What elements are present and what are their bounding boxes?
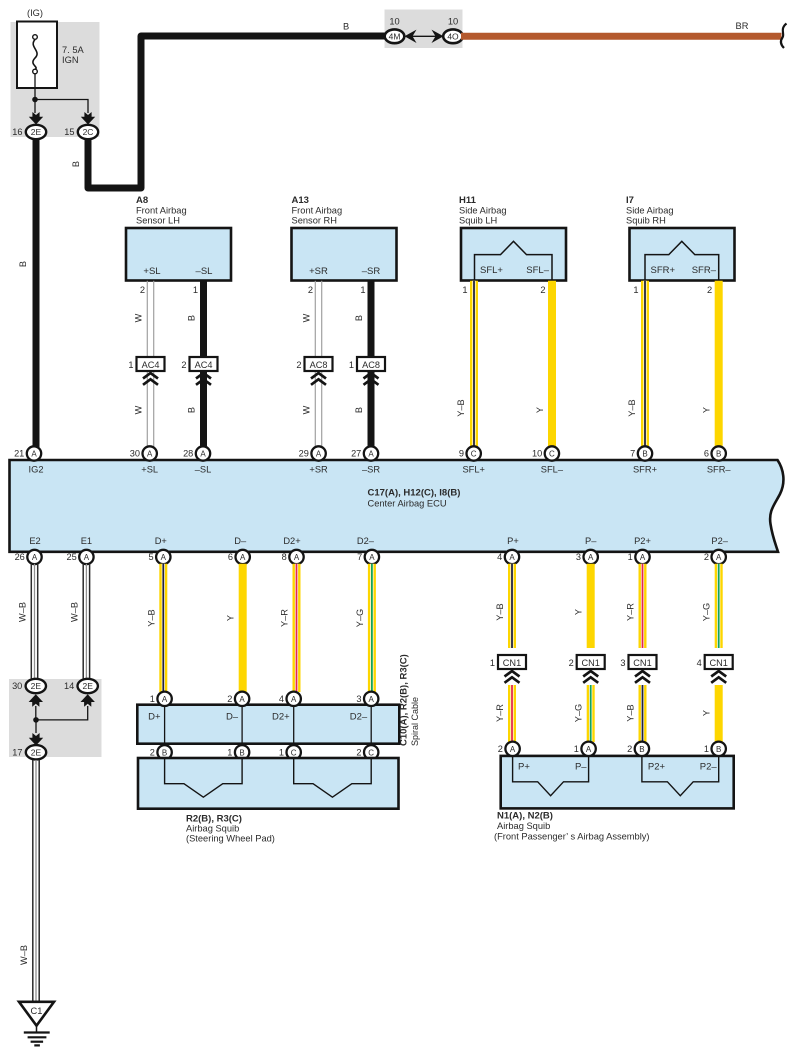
svg-text:Y: Y xyxy=(702,407,712,413)
svg-text:Y–B: Y–B xyxy=(495,603,505,620)
svg-text:E2: E2 xyxy=(29,536,40,546)
svg-text:D2–: D2– xyxy=(357,536,375,546)
svg-text:2: 2 xyxy=(181,360,186,370)
svg-text:1: 1 xyxy=(633,285,638,295)
svg-text:2E: 2E xyxy=(31,681,42,691)
svg-text:2: 2 xyxy=(296,360,301,370)
svg-text:1: 1 xyxy=(279,748,284,758)
svg-text:C17(A), H12(C), I8(B): C17(A), H12(C), I8(B) xyxy=(368,488,461,499)
svg-text:8: 8 xyxy=(282,552,287,562)
svg-text:B: B xyxy=(343,22,349,32)
svg-text:A8: A8 xyxy=(136,195,148,206)
svg-text:W–B: W–B xyxy=(70,602,80,622)
svg-text:2: 2 xyxy=(308,285,313,295)
svg-text:+SR: +SR xyxy=(309,465,328,475)
svg-text:1: 1 xyxy=(150,694,155,704)
svg-text:A: A xyxy=(161,553,167,562)
svg-text:SFR–: SFR– xyxy=(707,465,732,475)
svg-text:+SL: +SL xyxy=(141,465,158,475)
svg-text:Y–B: Y–B xyxy=(456,399,466,416)
svg-text:C1: C1 xyxy=(31,1006,43,1016)
svg-text:6: 6 xyxy=(704,449,709,459)
svg-text:CN1: CN1 xyxy=(710,658,728,668)
svg-text:A: A xyxy=(640,553,646,562)
svg-text:Y–R: Y–R xyxy=(495,704,505,722)
svg-text:28: 28 xyxy=(183,449,193,459)
svg-text:10: 10 xyxy=(448,17,458,27)
svg-text:Sensor LH: Sensor LH xyxy=(136,216,180,226)
svg-text:21: 21 xyxy=(14,449,24,459)
svg-text:A: A xyxy=(240,553,246,562)
svg-text:A: A xyxy=(84,553,90,562)
svg-text:CN1: CN1 xyxy=(503,658,521,668)
svg-text:A: A xyxy=(586,745,592,754)
svg-text:4M: 4M xyxy=(389,31,401,41)
svg-text:B: B xyxy=(354,315,364,321)
svg-text:2: 2 xyxy=(704,552,709,562)
svg-text:Sensor RH: Sensor RH xyxy=(292,216,337,226)
svg-text:B: B xyxy=(187,407,197,413)
svg-text:AC4: AC4 xyxy=(142,360,160,370)
svg-text:2: 2 xyxy=(540,285,545,295)
svg-text:1: 1 xyxy=(128,360,133,370)
svg-text:AC8: AC8 xyxy=(362,360,380,370)
svg-text:B: B xyxy=(716,450,721,459)
svg-text:5: 5 xyxy=(148,552,153,562)
svg-text:D–: D– xyxy=(226,712,239,723)
svg-text:+SL: +SL xyxy=(143,266,160,277)
svg-text:2E: 2E xyxy=(31,747,42,757)
svg-text:B: B xyxy=(187,315,197,321)
svg-text:4: 4 xyxy=(697,658,702,668)
svg-text:Squib RH: Squib RH xyxy=(626,216,666,226)
svg-text:3: 3 xyxy=(356,694,361,704)
svg-text:C: C xyxy=(368,748,374,757)
svg-text:–SL: –SL xyxy=(196,266,213,277)
svg-text:A: A xyxy=(294,553,300,562)
svg-text:B: B xyxy=(354,407,364,413)
svg-text:2: 2 xyxy=(569,658,574,668)
svg-text:BR: BR xyxy=(736,21,749,31)
svg-text:2: 2 xyxy=(356,748,361,758)
svg-text:16: 16 xyxy=(12,127,22,137)
svg-text:CN1: CN1 xyxy=(582,658,600,668)
svg-text:B: B xyxy=(642,450,647,459)
svg-text:W: W xyxy=(134,405,144,414)
svg-text:I7: I7 xyxy=(626,195,634,206)
svg-text:P2+: P2+ xyxy=(648,762,666,773)
svg-text:4: 4 xyxy=(279,694,284,704)
svg-text:1: 1 xyxy=(360,285,365,295)
svg-text:P–: P– xyxy=(575,762,587,773)
svg-text:D2+: D2+ xyxy=(272,712,290,723)
svg-text:IGN: IGN xyxy=(62,55,79,65)
svg-text:P2+: P2+ xyxy=(634,536,651,546)
svg-text:P2–: P2– xyxy=(700,762,718,773)
svg-text:A: A xyxy=(509,553,515,562)
svg-text:9: 9 xyxy=(459,449,464,459)
svg-text:D2–: D2– xyxy=(350,712,368,723)
svg-text:2E: 2E xyxy=(31,127,42,137)
svg-text:1: 1 xyxy=(227,748,232,758)
svg-text:(Steering Wheel Pad): (Steering Wheel Pad) xyxy=(186,834,275,844)
svg-text:+SR: +SR xyxy=(309,266,328,277)
svg-text:A: A xyxy=(369,695,375,704)
svg-text:W: W xyxy=(134,313,144,322)
svg-text:B: B xyxy=(162,748,167,757)
svg-text:SFL+: SFL+ xyxy=(480,265,503,276)
svg-text:–SR: –SR xyxy=(362,266,381,277)
svg-text:C: C xyxy=(471,450,477,459)
svg-text:P+: P+ xyxy=(507,536,519,546)
svg-text:7. 5A: 7. 5A xyxy=(62,45,85,55)
svg-text:SFR–: SFR– xyxy=(692,265,717,276)
svg-text:B: B xyxy=(716,745,721,754)
svg-text:3: 3 xyxy=(576,552,581,562)
svg-text:1: 1 xyxy=(628,552,633,562)
svg-text:(Front Passenger’ s Airbag Ass: (Front Passenger’ s Airbag Assembly) xyxy=(494,832,650,842)
svg-text:A: A xyxy=(368,450,374,459)
svg-text:A: A xyxy=(32,553,38,562)
svg-text:Y: Y xyxy=(226,615,236,621)
svg-text:C10(A), R2(B), R3(C): C10(A), R2(B), R3(C) xyxy=(399,654,410,746)
svg-text:7: 7 xyxy=(357,552,362,562)
svg-text:B: B xyxy=(71,161,81,167)
svg-text:CN1: CN1 xyxy=(633,658,651,668)
svg-text:1: 1 xyxy=(704,744,709,754)
svg-text:A: A xyxy=(147,450,153,459)
svg-text:Y–G: Y–G xyxy=(702,603,712,621)
svg-text:30: 30 xyxy=(12,681,22,691)
svg-text:SFL+: SFL+ xyxy=(462,465,484,475)
svg-text:P–: P– xyxy=(585,536,597,546)
svg-text:W: W xyxy=(302,405,312,414)
svg-text:A: A xyxy=(31,450,37,459)
svg-text:1: 1 xyxy=(462,285,467,295)
svg-text:AC8: AC8 xyxy=(310,360,328,370)
svg-text:2: 2 xyxy=(150,748,155,758)
svg-text:A: A xyxy=(316,450,322,459)
svg-text:W–B: W–B xyxy=(18,602,28,622)
svg-text:P+: P+ xyxy=(518,762,530,773)
svg-text:7: 7 xyxy=(630,449,635,459)
svg-text:Y: Y xyxy=(702,710,712,716)
svg-text:C: C xyxy=(291,748,297,757)
svg-text:27: 27 xyxy=(351,449,361,459)
svg-text:Y–G: Y–G xyxy=(574,704,584,722)
svg-text:Y–B: Y–B xyxy=(146,609,156,626)
svg-text:IG2: IG2 xyxy=(29,465,44,475)
svg-text:W: W xyxy=(302,313,312,322)
svg-text:SFL–: SFL– xyxy=(541,465,564,475)
svg-text:2: 2 xyxy=(627,744,632,754)
svg-text:Spiral Cable: Spiral Cable xyxy=(410,697,420,746)
svg-text:Airbag Squib: Airbag Squib xyxy=(186,824,239,834)
svg-text:Side Airbag: Side Airbag xyxy=(459,206,507,216)
svg-text:A13: A13 xyxy=(292,195,309,206)
svg-text:2C: 2C xyxy=(83,127,94,137)
svg-text:Y–R: Y–R xyxy=(280,609,290,627)
svg-text:26: 26 xyxy=(15,552,25,562)
svg-text:SFR+: SFR+ xyxy=(651,265,676,276)
svg-text:A: A xyxy=(291,695,297,704)
svg-text:10: 10 xyxy=(532,449,542,459)
svg-text:Y: Y xyxy=(535,407,545,413)
svg-text:Squib LH: Squib LH xyxy=(459,216,497,226)
svg-text:30: 30 xyxy=(130,449,140,459)
svg-text:Airbag Squib: Airbag Squib xyxy=(497,821,550,831)
svg-text:(IG): (IG) xyxy=(27,8,43,18)
svg-text:2: 2 xyxy=(707,285,712,295)
svg-text:10: 10 xyxy=(389,17,399,27)
svg-text:B: B xyxy=(639,745,644,754)
svg-text:A: A xyxy=(239,695,245,704)
svg-text:2E: 2E xyxy=(82,681,93,691)
svg-text:Front Airbag: Front Airbag xyxy=(136,206,187,216)
svg-text:N1(A), N2(B): N1(A), N2(B) xyxy=(497,811,553,822)
svg-text:A: A xyxy=(588,553,594,562)
svg-text:4: 4 xyxy=(497,552,502,562)
svg-text:2: 2 xyxy=(498,744,503,754)
svg-text:Y: Y xyxy=(574,609,584,615)
svg-text:P2–: P2– xyxy=(711,536,728,546)
svg-text:B: B xyxy=(239,748,244,757)
svg-text:29: 29 xyxy=(299,449,309,459)
svg-text:A: A xyxy=(162,695,168,704)
svg-text:–SR: –SR xyxy=(362,465,380,475)
svg-text:B: B xyxy=(18,261,28,267)
svg-text:SFR+: SFR+ xyxy=(633,465,657,475)
svg-text:3: 3 xyxy=(620,658,625,668)
svg-text:Y–G: Y–G xyxy=(355,609,365,627)
svg-text:D+: D+ xyxy=(155,536,167,546)
svg-text:17: 17 xyxy=(12,748,22,758)
svg-text:SFL–: SFL– xyxy=(526,265,549,276)
svg-text:W–B: W–B xyxy=(19,945,29,965)
svg-text:1: 1 xyxy=(490,658,495,668)
svg-text:AC4: AC4 xyxy=(195,360,213,370)
svg-text:D2+: D2+ xyxy=(283,536,300,546)
svg-text:25: 25 xyxy=(66,552,76,562)
svg-text:2: 2 xyxy=(227,694,232,704)
svg-text:15: 15 xyxy=(64,127,74,137)
svg-text:A: A xyxy=(200,450,206,459)
svg-text:6: 6 xyxy=(228,552,233,562)
svg-text:Front Airbag: Front Airbag xyxy=(292,206,343,216)
svg-text:–SL: –SL xyxy=(195,465,212,475)
svg-text:A: A xyxy=(369,553,375,562)
svg-text:Y–B: Y–B xyxy=(626,704,636,721)
svg-text:Center Airbag ECU: Center Airbag ECU xyxy=(368,499,447,509)
svg-text:4O: 4O xyxy=(447,31,459,41)
svg-text:1: 1 xyxy=(193,285,198,295)
svg-text:Side Airbag: Side Airbag xyxy=(626,206,674,216)
svg-text:E1: E1 xyxy=(81,536,92,546)
svg-text:2: 2 xyxy=(140,285,145,295)
svg-text:C: C xyxy=(549,450,555,459)
svg-text:H11: H11 xyxy=(459,195,477,206)
svg-text:1: 1 xyxy=(349,360,354,370)
svg-text:D–: D– xyxy=(234,536,247,546)
svg-text:1: 1 xyxy=(574,744,579,754)
svg-text:Y–R: Y–R xyxy=(626,603,636,621)
svg-text:A: A xyxy=(510,745,516,754)
svg-text:D+: D+ xyxy=(148,712,161,723)
svg-text:A: A xyxy=(716,553,722,562)
svg-text:14: 14 xyxy=(64,681,74,691)
svg-text:Y–B: Y–B xyxy=(627,399,637,416)
